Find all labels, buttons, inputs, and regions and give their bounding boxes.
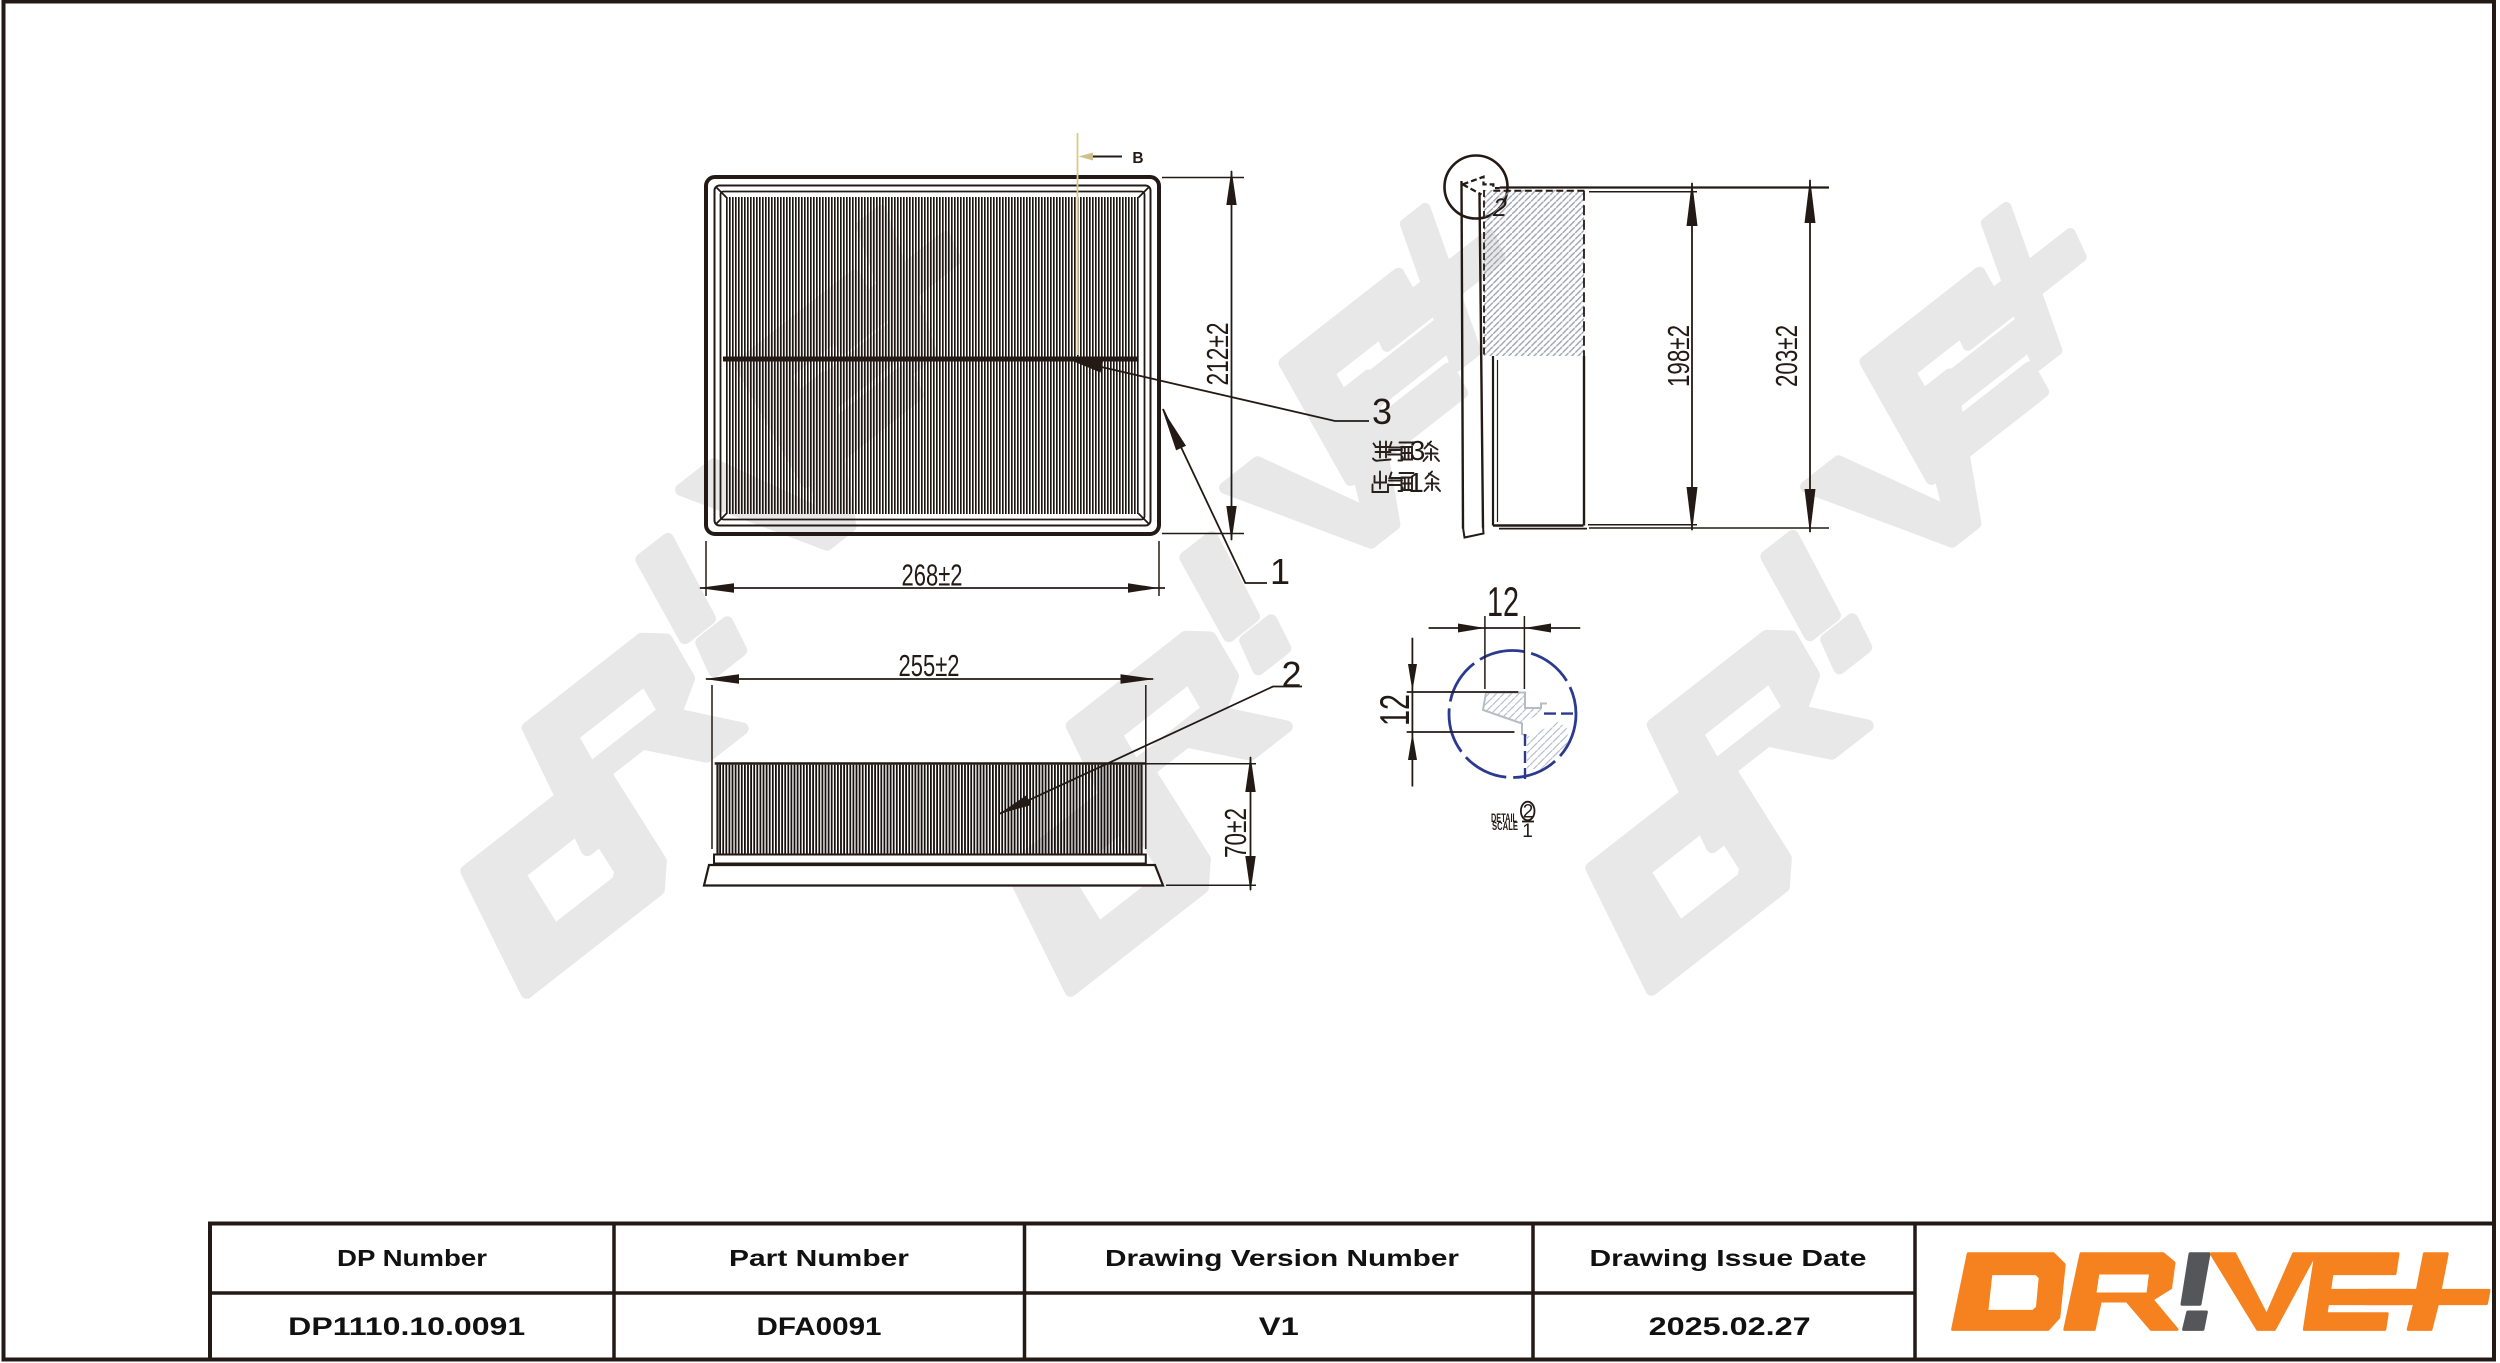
svg-text:DP1110.10.0091: DP1110.10.0091 — [288, 1313, 525, 1341]
svg-text:2: 2 — [1492, 194, 1507, 222]
svg-text:12: 12 — [1487, 578, 1519, 625]
svg-text:3: 3 — [1372, 391, 1392, 432]
svg-text:B: B — [1132, 150, 1143, 167]
svg-text:Part Number: Part Number — [729, 1245, 909, 1271]
svg-text:DFA0091: DFA0091 — [757, 1313, 882, 1341]
svg-text:Drawing Version Number: Drawing Version Number — [1105, 1245, 1459, 1271]
svg-text:V1: V1 — [1259, 1313, 1299, 1341]
svg-text:12: 12 — [1371, 694, 1418, 726]
svg-text:DP Number: DP Number — [337, 1245, 487, 1271]
svg-text:1: 1 — [1522, 821, 1533, 842]
svg-text:70±2: 70±2 — [1218, 808, 1253, 858]
svg-text:2: 2 — [1523, 802, 1534, 823]
svg-text:268±2: 268±2 — [902, 558, 963, 593]
svg-text:3: 3 — [1410, 435, 1426, 466]
svg-text:212±2: 212±2 — [1200, 323, 1235, 386]
svg-text:1: 1 — [1408, 467, 1424, 498]
svg-text:198±2: 198±2 — [1661, 325, 1696, 387]
svg-text:203±2: 203±2 — [1769, 325, 1804, 387]
svg-text:1: 1 — [1270, 551, 1290, 592]
svg-text:255±2: 255±2 — [899, 648, 960, 683]
svg-text:SCALE: SCALE — [1492, 821, 1518, 833]
svg-text:2025.02.27: 2025.02.27 — [1649, 1313, 1811, 1341]
svg-text:Drawing Issue Date: Drawing Issue Date — [1590, 1245, 1867, 1271]
svg-text:2: 2 — [1281, 654, 1301, 695]
